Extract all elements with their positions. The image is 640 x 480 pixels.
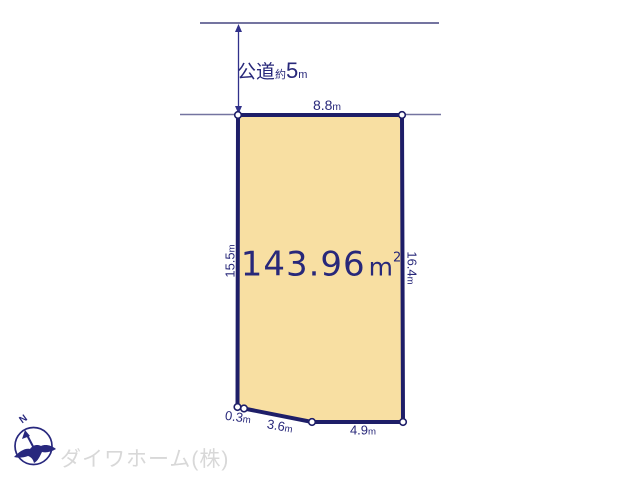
- road-name: 公道: [237, 62, 275, 83]
- site-plan-diagram: 公道約5m 8.8m 15.5m 16.4m 0.3m 3.6m 4.9m 14…: [0, 0, 640, 480]
- area-value: 143.96: [241, 244, 366, 284]
- dimension-left-label: 15.5m: [223, 244, 238, 277]
- dimension-unit: m: [227, 244, 238, 252]
- dimension-value: 0.3: [224, 408, 244, 425]
- dimension-bottom-right-label: 4.9m: [350, 423, 376, 438]
- dimension-right-label: 16.4m: [405, 251, 420, 284]
- company-name: ダイワホーム(株): [60, 443, 229, 473]
- dimension-value: 8.8: [313, 97, 332, 113]
- site-plan-drawing: [0, 0, 640, 480]
- compass-icon: [14, 428, 56, 465]
- road-width-value: 5: [286, 58, 298, 83]
- area-unit: m: [369, 252, 393, 281]
- vertex-marker: [309, 419, 316, 426]
- dimension-unit: m: [332, 102, 341, 113]
- vertex-marker: [399, 112, 406, 119]
- vertex-marker: [235, 112, 242, 119]
- dimension-top-label: 8.8m: [313, 97, 341, 113]
- dimension-unit: m: [368, 427, 376, 438]
- road-approx-prefix: 約: [275, 69, 286, 81]
- dimension-unit: m: [242, 414, 251, 426]
- dimension-unit: m: [405, 277, 416, 285]
- road-label: 公道約5m: [237, 58, 307, 84]
- dimension-value: 4.9: [350, 423, 368, 438]
- vertex-marker: [400, 419, 407, 426]
- area-label: 143.96m2: [241, 244, 402, 284]
- dimension-value: 15.5: [223, 252, 238, 277]
- dimension-value: 16.4: [405, 251, 420, 276]
- road-width-unit: m: [298, 69, 307, 81]
- area-unit-superscript: 2: [393, 250, 401, 265]
